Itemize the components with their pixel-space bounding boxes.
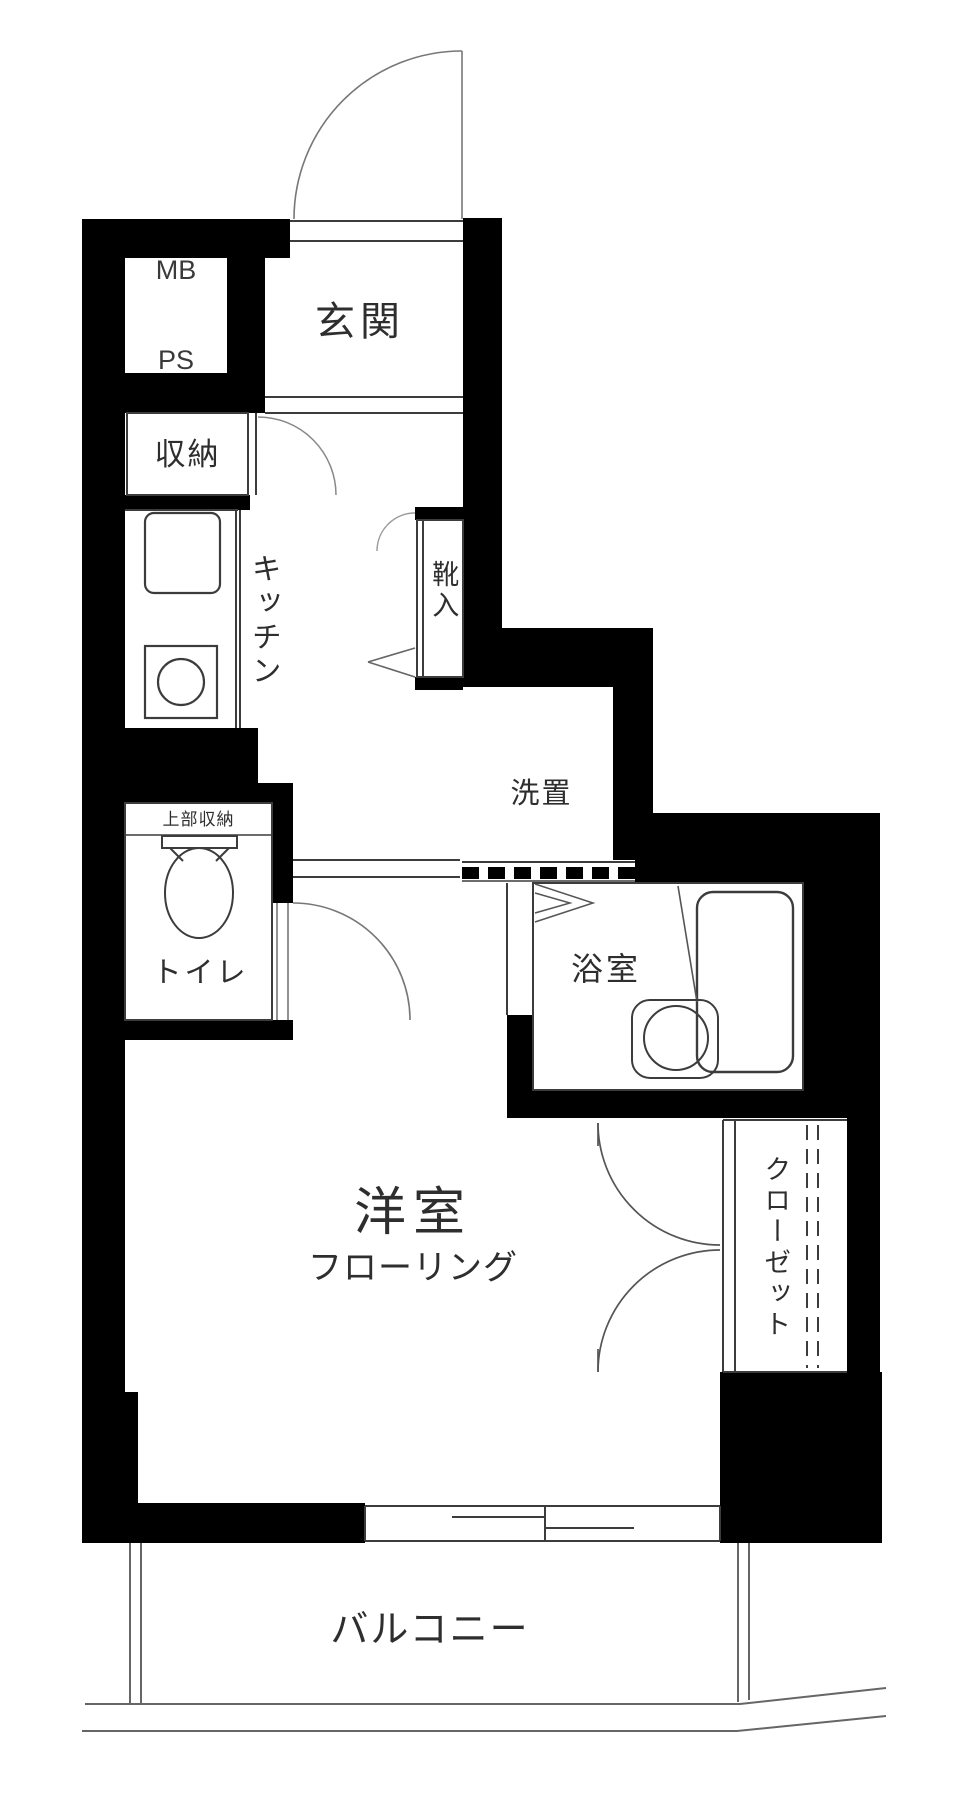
toilet-icon [162,836,237,938]
ps-label: PS [153,345,198,375]
wall-segment [272,803,293,903]
wall-segment [415,677,463,690]
wall-segment [803,883,880,1090]
closet-double-door-arcs [598,1123,720,1372]
wall-segment [507,1090,880,1118]
closet-hanger-pipe-dashed [807,1125,818,1368]
label-upper-storage: 上部収納 [125,810,272,830]
sliding-window-icon [365,1506,720,1541]
wall-segment [507,1015,533,1090]
shoe-cabinet-open-door [368,648,415,677]
wall-segment [82,1503,365,1543]
entrance-threshold-lines [290,221,463,241]
room-label-storage: 収納 [127,437,248,473]
wall-segment [82,783,293,803]
room-label-western-room: 洋室 [303,1185,523,1241]
room-sublabel-flooring: フローリング [293,1248,533,1288]
stove-burner-icon [145,646,217,718]
room-label-mb-ps: MB PS [125,257,227,373]
sink-icon [145,513,220,593]
wall-segment [227,219,265,373]
wall-segment [125,1392,138,1503]
wall-segment [82,1020,293,1040]
wall-segment [463,218,502,628]
floor-plan: MB PS 玄関 収納 キッチン 靴入 洗置 上部収納 トイレ 浴室 洋室 フロ… [0,0,960,1813]
sliding-partition-dashed [462,862,635,881]
room-label-shoe-cabinet: 靴入 [428,560,458,636]
wall-segment [82,495,250,510]
wall-segment [653,813,880,860]
washbasin-icon [632,1000,718,1078]
hall-door-arc [258,417,336,495]
room-label-closet: クローゼット [760,1155,790,1375]
wall-segment [613,687,653,860]
mb-label: MB [153,255,198,285]
entrance-door-arc [294,51,462,219]
shoe-cabinet-door-arc [377,513,415,551]
room-label-balcony: バルコニー [330,1608,530,1652]
folding-bath-door-icon [535,884,593,922]
wall-segment [847,1118,880,1372]
wall-segment [635,860,880,883]
toilet-door [277,903,410,1020]
bathtub-icon [697,892,793,1072]
bath-deck-line [678,886,697,1002]
floor-boundary-lines [293,860,460,877]
room-label-washer-space: 洗置 [483,778,600,810]
room-label-toilet: トイレ [127,957,274,989]
wall-segment [463,628,653,687]
wall-segment [415,507,463,520]
kitchen-counter [125,510,240,728]
wall-segment [720,1372,882,1543]
room-label-entrance: 玄関 [280,298,440,346]
entrance-step-lines [265,397,463,413]
wall-segment [82,728,258,783]
room-label-bathroom: 浴室 [536,952,676,988]
room-label-kitchen: キッチン [246,553,280,703]
